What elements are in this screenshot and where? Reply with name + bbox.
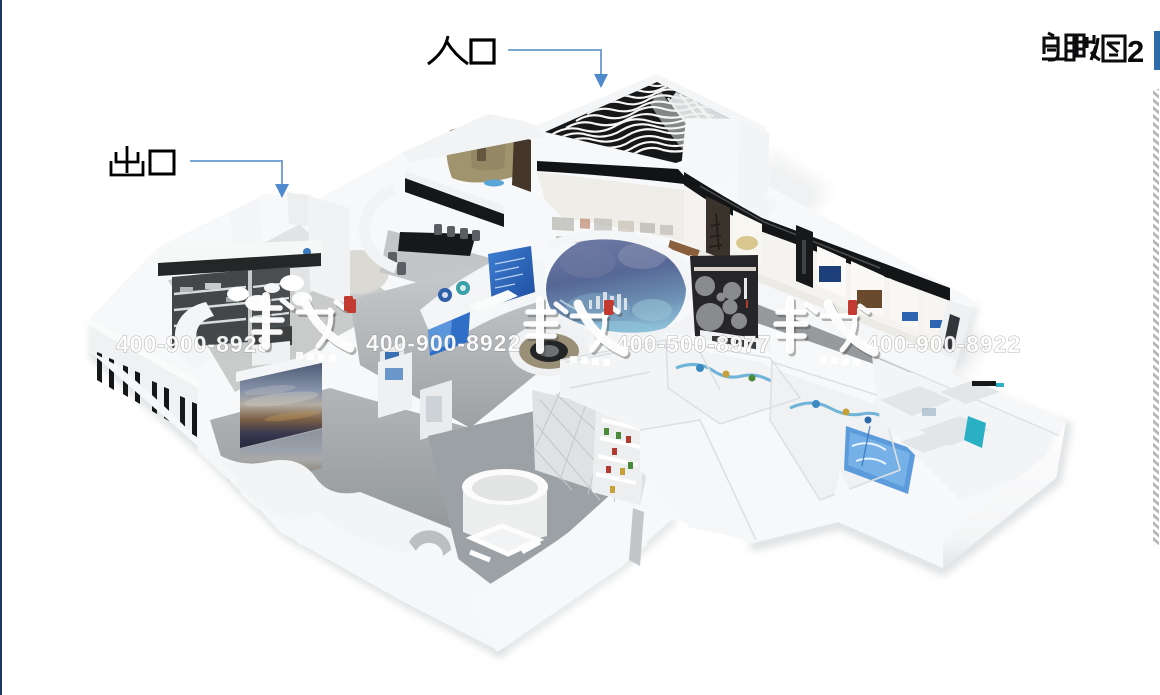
svg-text:400-900-8928: 400-900-8928 (116, 331, 271, 357)
svg-text:400-500-8977: 400-500-8977 (616, 331, 771, 357)
svg-text:400-900-8922: 400-900-8922 (866, 331, 1021, 357)
svg-text:2: 2 (1127, 34, 1144, 69)
svg-text:400-900-8922: 400-900-8922 (366, 330, 521, 356)
